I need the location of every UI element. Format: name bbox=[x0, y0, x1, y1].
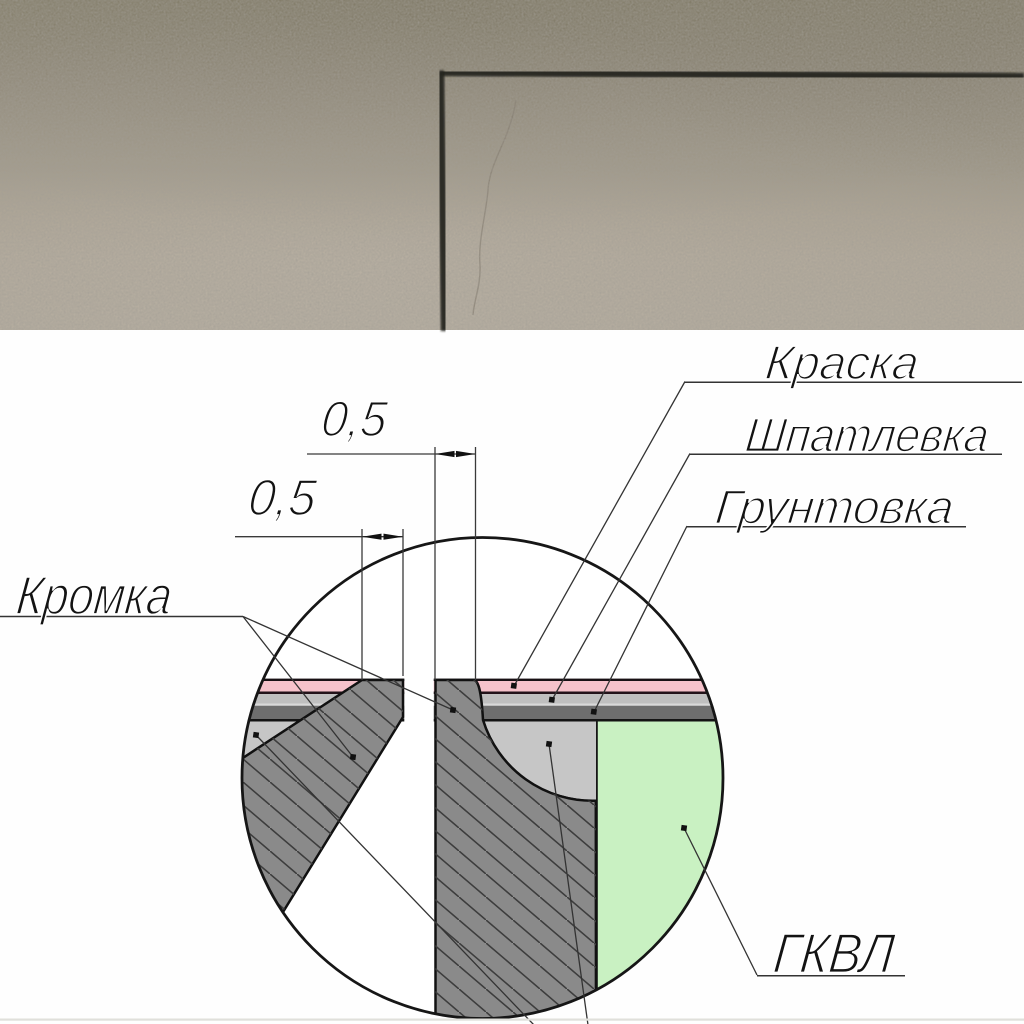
svg-text:Шпатлевка: Шпатлевка bbox=[743, 409, 992, 463]
svg-text:0,5: 0,5 bbox=[246, 469, 320, 526]
svg-text:Краска: Краска bbox=[763, 336, 922, 390]
svg-text:Кромка: Кромка bbox=[14, 566, 175, 626]
svg-text:Грунтовка: Грунтовка bbox=[713, 481, 957, 535]
svg-text:ГКВЛ: ГКВЛ bbox=[771, 922, 898, 985]
svg-text:0,5: 0,5 bbox=[319, 391, 390, 447]
